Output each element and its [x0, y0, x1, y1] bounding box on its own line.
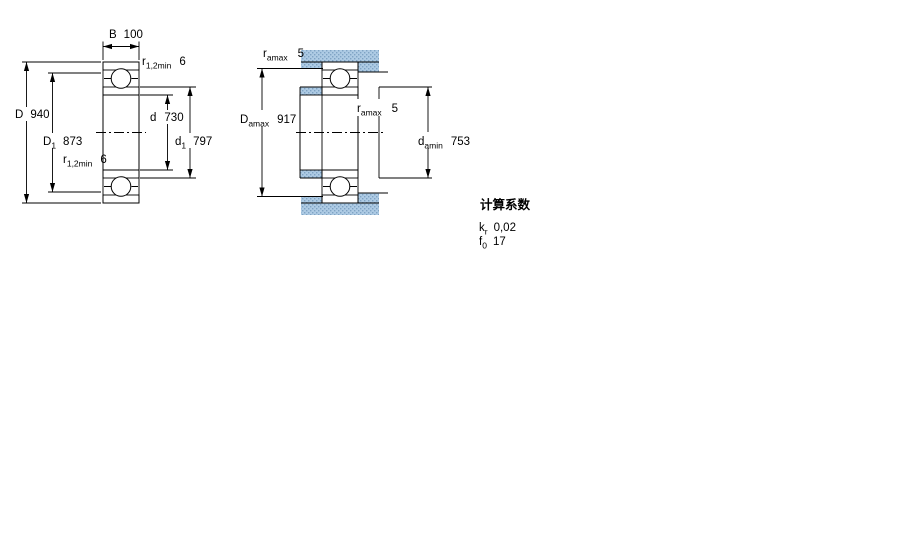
right-ball-top	[330, 69, 350, 89]
dim-D-extensions	[22, 62, 101, 203]
shaft-shoulder-top	[300, 87, 322, 95]
dim-damin-arrow-bottom	[425, 169, 430, 178]
label-D1-873: D1873	[43, 136, 82, 151]
dim-D-arrow-top	[24, 62, 29, 71]
label-d1-797: d1797	[175, 136, 212, 151]
left-ball-top	[111, 69, 131, 89]
bearing-drawing-canvas: B100 r1,2min6 D940 D1873 r1,2min6 d730 d…	[0, 0, 900, 560]
housing-shoulder-top-left	[301, 62, 322, 69]
label-r12min-bottom: r1,2min6	[63, 154, 107, 169]
dim-d-arrow-bottom	[165, 161, 170, 170]
label-kr: kr0,02	[479, 222, 516, 237]
dim-d1-arrow-bottom	[187, 169, 192, 178]
right-mounting-section	[296, 50, 388, 215]
calculation-factors: 计算系数 kr0,02 f017	[479, 197, 531, 251]
dim-Damax-arrow-bottom	[259, 188, 264, 197]
calculation-factors-title: 计算系数	[480, 197, 531, 212]
right-ball-bottom	[330, 177, 350, 197]
housing-shoulder-bottom-left	[301, 197, 322, 204]
dim-d-arrow-top	[165, 95, 170, 104]
dim-B-extensions	[103, 42, 139, 61]
dim-D1-arrow-top	[50, 73, 55, 82]
left-bearing-section	[96, 62, 146, 203]
label-f0: f017	[479, 236, 506, 251]
housing-shoulder-top-right	[358, 62, 379, 72]
dim-B-arrow-left	[103, 44, 112, 49]
label-D-940: D940	[15, 109, 50, 121]
dim-d-extensions	[140, 95, 173, 170]
housing-block-bottom	[301, 203, 379, 215]
dim-Damax-arrow-top	[259, 69, 264, 78]
dimension-labels: B100 r1,2min6 D940 D1873 r1,2min6 d730 d…	[15, 29, 470, 169]
dim-d1-arrow-top	[187, 87, 192, 96]
dim-D-arrow-bottom	[24, 194, 29, 203]
label-d-730: d730	[150, 112, 184, 124]
dim-D1-arrow-bottom	[50, 183, 55, 192]
label-r12min-top: r1,2min6	[142, 56, 186, 71]
left-ball-bottom	[111, 177, 131, 197]
dim-B-arrow-right	[130, 44, 139, 49]
shaft-shoulder-bottom	[300, 170, 322, 178]
label-B-100: B100	[109, 29, 143, 41]
label-ramax-top: ramax5	[263, 48, 304, 63]
housing-block-top	[301, 50, 379, 62]
housing-shoulder-bottom-right	[358, 193, 379, 203]
dim-D1-extensions	[48, 73, 101, 192]
dim-damin-arrow-top	[425, 87, 430, 96]
technical-drawing: B100 r1,2min6 D940 D1873 r1,2min6 d730 d…	[0, 0, 900, 560]
